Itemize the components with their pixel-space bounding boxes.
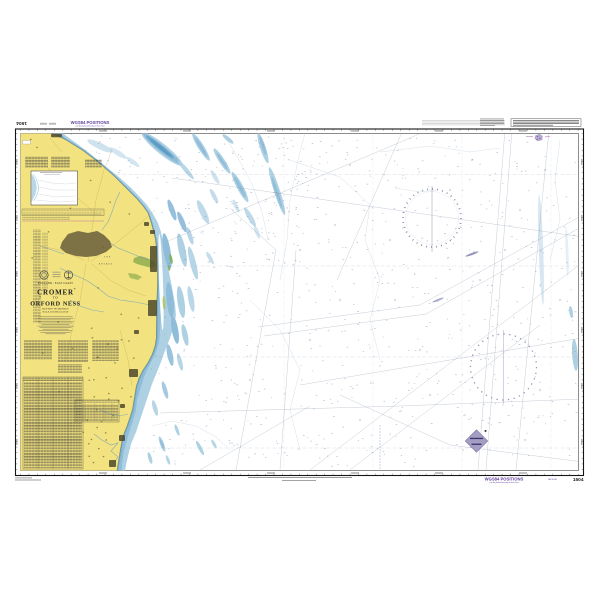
svg-text:ENGLAND - EAST COAST: ENGLAND - EAST COAST — [38, 282, 73, 285]
svg-text:TO: TO — [53, 295, 59, 299]
svg-text:ORFORD NESS: ORFORD NESS — [30, 301, 80, 308]
svg-text:WGS84 POSITIONS: WGS84 POSITIONS — [485, 476, 524, 481]
svg-text:SCALE 1:150,000 at lat 52°40': SCALE 1:150,000 at lat 52°40' — [43, 311, 70, 314]
svg-text:1504: 1504 — [16, 120, 27, 126]
svg-text:T H E: T H E — [104, 257, 111, 259]
svg-text:NM 4346: NM 4346 — [548, 479, 558, 481]
svg-text:B R O A D S: B R O A D S — [99, 262, 113, 265]
svg-text:can be plotted directly on thi: can be plotted directly on this chart — [489, 481, 519, 484]
svg-text:WGS84 POSITIONS: WGS84 POSITIONS — [71, 120, 110, 125]
svg-text:can be plotted directly on thi: can be plotted directly on this chart — [75, 125, 105, 128]
svg-text:DEPTHS IN METRES: DEPTHS IN METRES — [42, 308, 69, 311]
svg-text:1504: 1504 — [573, 477, 584, 483]
